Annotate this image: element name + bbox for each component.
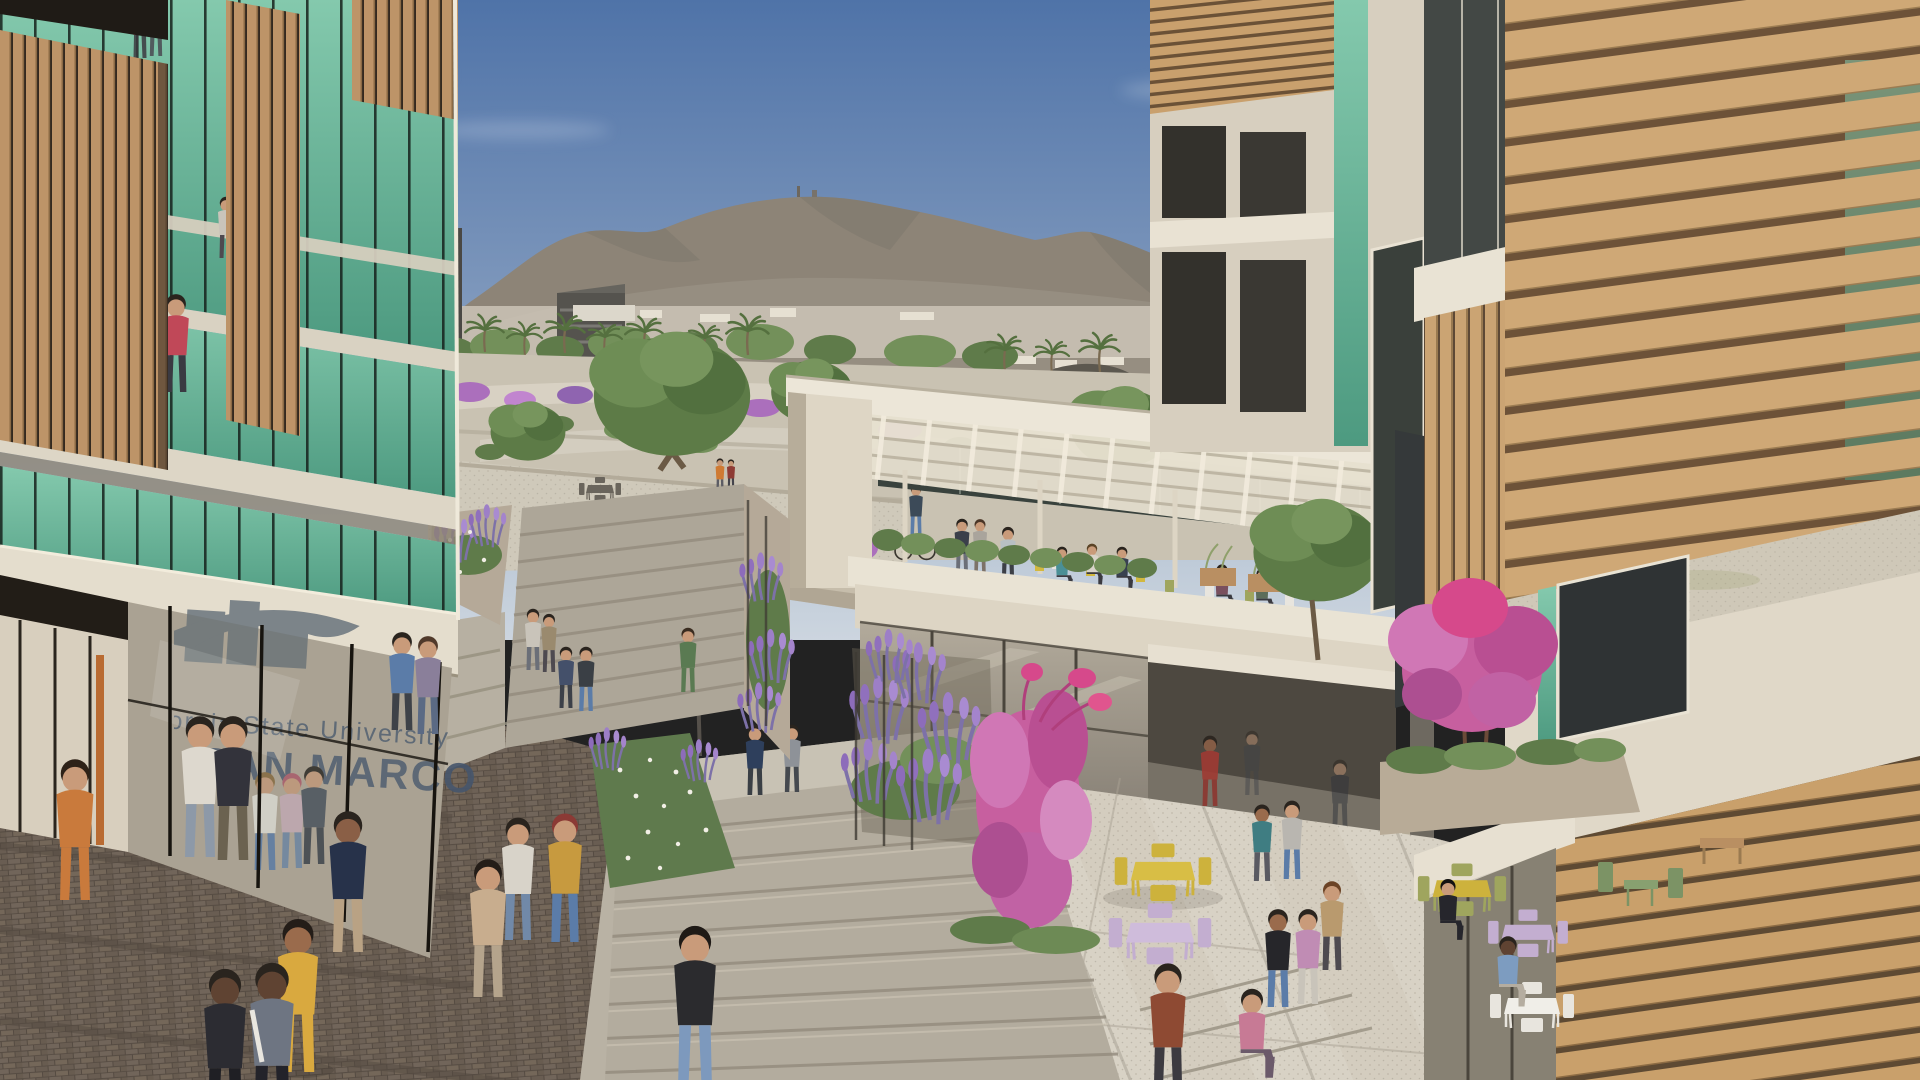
teal-panel-strip xyxy=(1334,0,1368,446)
copper-downspout xyxy=(96,655,104,845)
lavender-planter xyxy=(841,629,995,850)
upper-stair-flight xyxy=(505,484,744,748)
summit-antenna xyxy=(797,186,800,197)
wood-slat-pier-left xyxy=(0,30,168,470)
summit-structure xyxy=(812,190,817,197)
person-foreground-man xyxy=(250,963,293,1080)
person-foreground-woman xyxy=(204,969,246,1080)
wood-slat-band-top xyxy=(352,0,458,120)
lower-window xyxy=(1558,556,1688,740)
white-flower-bed xyxy=(589,727,735,888)
rendering-canvas: California State University SAN MARCOS xyxy=(0,0,1920,1080)
wood-slat-pier-mid xyxy=(226,0,300,436)
stair-planter-right xyxy=(737,484,794,760)
campus-rendering: California State University SAN MARCOS xyxy=(0,0,1920,1080)
